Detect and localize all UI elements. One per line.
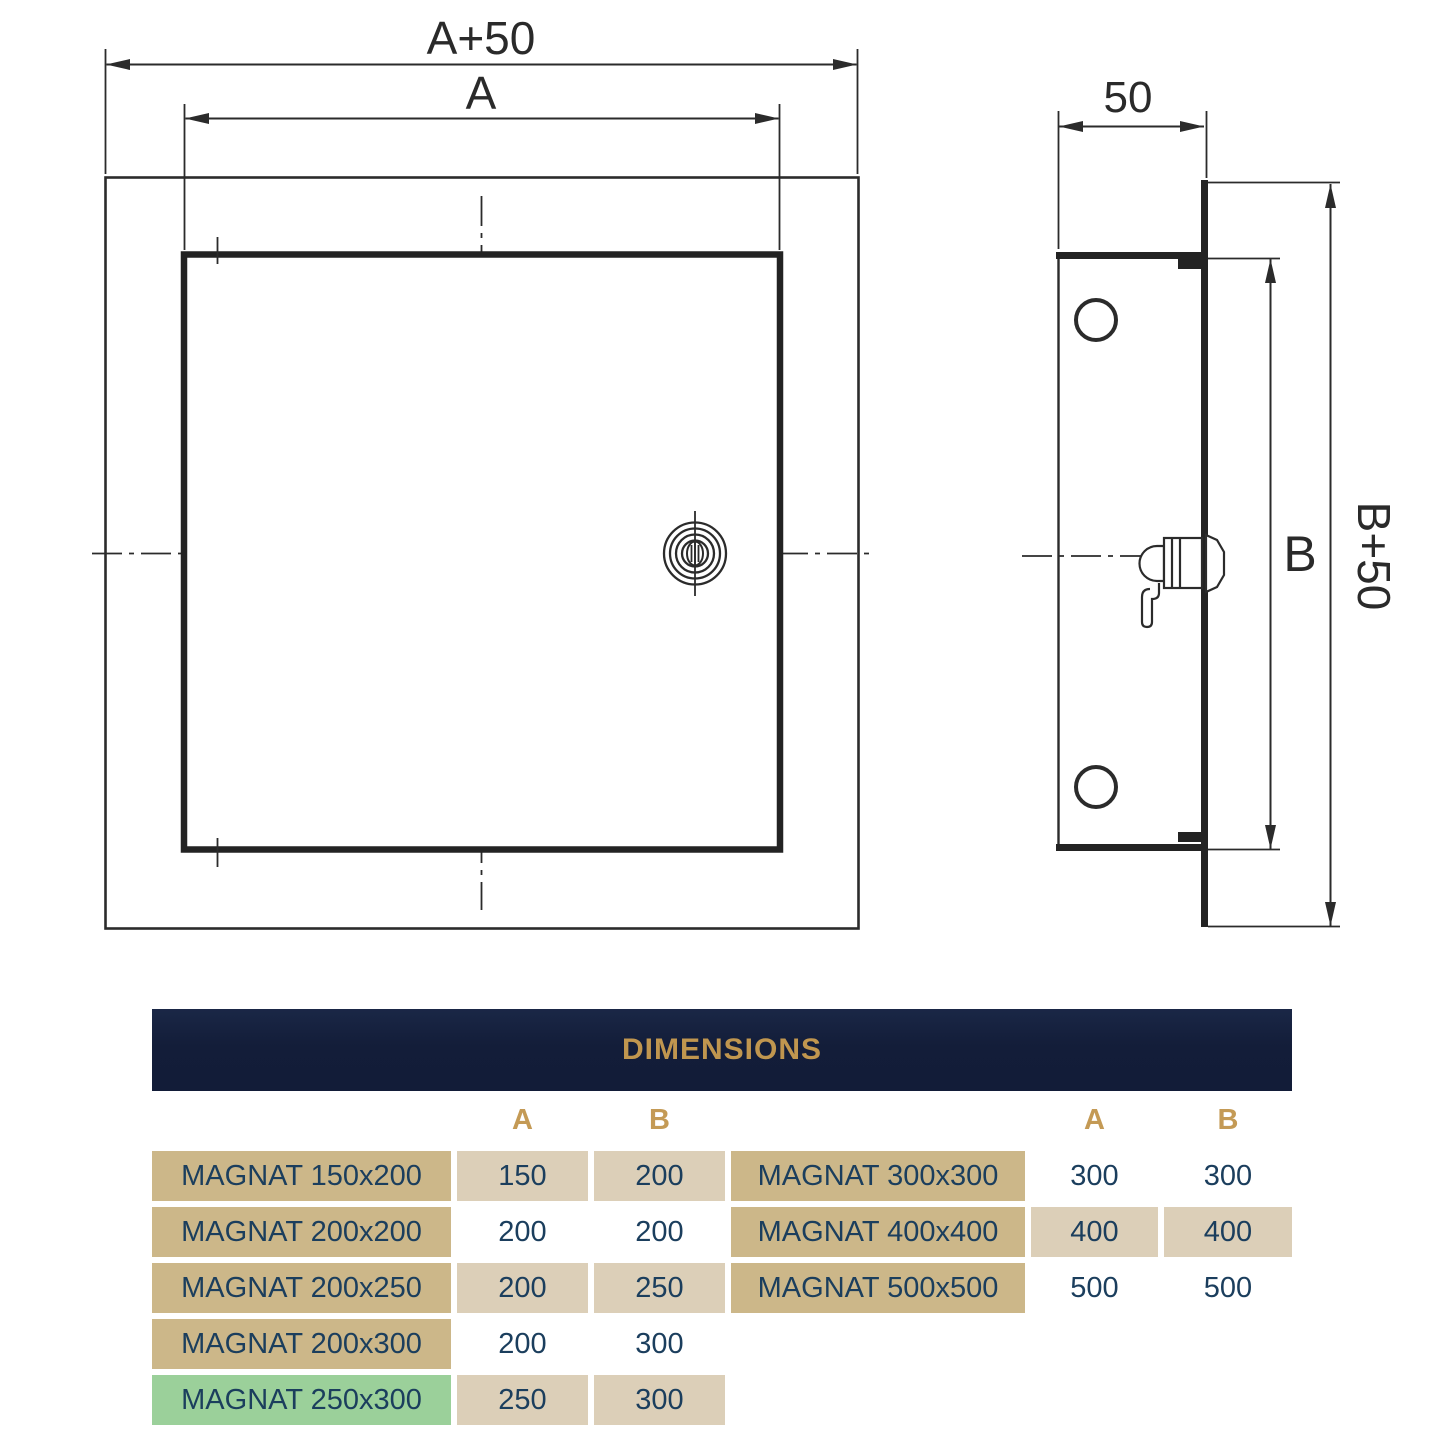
- value-a-cell: 300: [1031, 1151, 1158, 1201]
- value-b-cell: 400: [1164, 1207, 1292, 1257]
- model-cell-highlighted: MAGNAT 250x300: [152, 1375, 451, 1425]
- value-a-cell: 250: [457, 1375, 588, 1425]
- side-door-notch-bottom: [1178, 832, 1202, 842]
- dim-label-b-plus-50: B+50: [1348, 502, 1400, 611]
- table-grid: A B A B MAGNAT 150x200 150 200 MAGNAT 30…: [152, 1095, 1292, 1425]
- side-view: 50 B B+50: [1022, 73, 1400, 927]
- dim-label-a: A: [466, 67, 497, 119]
- model-cell: MAGNAT 400x400: [731, 1207, 1025, 1257]
- value-a-cell: 150: [457, 1151, 588, 1201]
- model-cell: MAGNAT 300x300: [731, 1151, 1025, 1201]
- dim-label-50: 50: [1104, 73, 1153, 122]
- value-b-cell: 300: [594, 1375, 725, 1425]
- table-header: DIMENSIONS: [152, 1009, 1292, 1091]
- table-title: DIMENSIONS: [622, 1033, 822, 1067]
- empty-cell: [731, 1319, 1025, 1369]
- subheader-a-right: A: [1031, 1095, 1158, 1145]
- page: A+50 A: [0, 0, 1445, 1445]
- dimension-50: 50: [1059, 73, 1207, 249]
- side-hole-top: [1076, 300, 1116, 340]
- technical-drawing: A+50 A: [0, 0, 1445, 990]
- value-a-cell: 200: [457, 1319, 588, 1369]
- front-view: A+50 A: [92, 12, 869, 929]
- subheader-a-left: A: [457, 1095, 588, 1145]
- dim-label-b: B: [1283, 526, 1316, 582]
- subheader-b-right: B: [1164, 1095, 1292, 1145]
- value-a-cell: 500: [1031, 1263, 1158, 1313]
- dim-label-a-plus-50: A+50: [427, 12, 536, 64]
- side-hole-bottom: [1076, 767, 1116, 807]
- subheader-model-left: [152, 1095, 451, 1145]
- model-cell: MAGNAT 150x200: [152, 1151, 451, 1201]
- value-a-cell: 200: [457, 1263, 588, 1313]
- empty-cell: [731, 1375, 1025, 1425]
- value-b-cell: 300: [594, 1319, 725, 1369]
- empty-cell: [1164, 1319, 1292, 1369]
- dimensions-table: DIMENSIONS A B A B MAGNAT 150x200 150 20…: [152, 1009, 1292, 1425]
- value-b-cell: 500: [1164, 1263, 1292, 1313]
- model-cell: MAGNAT 200x250: [152, 1263, 451, 1313]
- model-cell: MAGNAT 500x500: [731, 1263, 1025, 1313]
- latch-mechanism: [1022, 535, 1224, 627]
- side-door-notch-top: [1178, 259, 1202, 269]
- subheader-model-right: [731, 1095, 1025, 1145]
- value-b-cell: 200: [594, 1151, 725, 1201]
- model-cell: MAGNAT 200x300: [152, 1319, 451, 1369]
- value-b-cell: 300: [1164, 1151, 1292, 1201]
- empty-cell: [1031, 1319, 1158, 1369]
- subheader-b-left: B: [594, 1095, 725, 1145]
- value-a-cell: 400: [1031, 1207, 1158, 1257]
- value-a-cell: 200: [457, 1207, 588, 1257]
- empty-cell: [1031, 1375, 1158, 1425]
- empty-cell: [1164, 1375, 1292, 1425]
- value-b-cell: 250: [594, 1263, 725, 1313]
- value-b-cell: 200: [594, 1207, 725, 1257]
- model-cell: MAGNAT 200x200: [152, 1207, 451, 1257]
